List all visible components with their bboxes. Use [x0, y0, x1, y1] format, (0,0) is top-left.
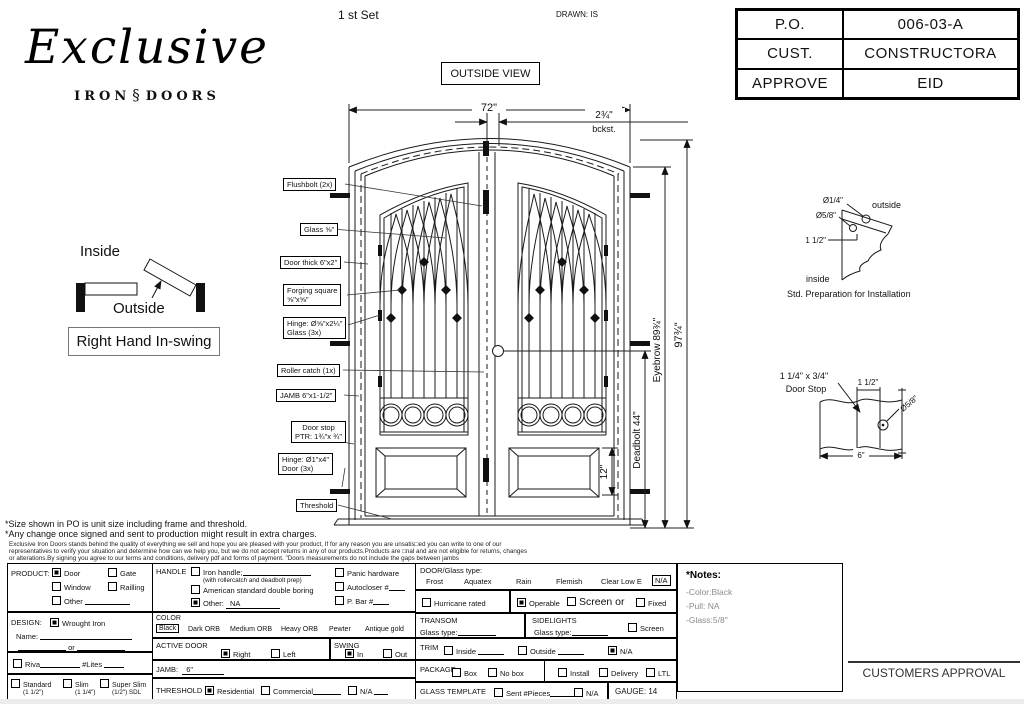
package-title: PACKAGE — [420, 665, 456, 674]
checkbox-sidelights-screen[interactable] — [628, 623, 637, 632]
checkbox-install[interactable] — [558, 668, 567, 677]
checkbox-residential[interactable] — [205, 686, 214, 695]
install-hole-fiveeighths-label: Ø5/8" — [816, 211, 836, 220]
glass-template-section: GLASS TEMPLATE Sent #Pieces N/A — [415, 682, 608, 700]
swing-outside-label: Outside — [113, 300, 165, 317]
swing-inside-label: Inside — [80, 243, 120, 260]
design-name-label: Name: — [16, 632, 38, 641]
checkbox-panic-hardware[interactable] — [335, 568, 344, 577]
bottom-panels — [376, 448, 599, 497]
jamb-value[interactable]: 6" — [182, 665, 224, 675]
callout-jamb: JAMB 6"x1-1/2" — [276, 389, 336, 402]
notes-section: *Notes: -Color:Black -Pull: NA -Glass:5/… — [677, 563, 843, 692]
active-door-section: ACTIVE DOOR Right Left — [152, 638, 330, 660]
checkbox-sent-pieces[interactable] — [494, 688, 503, 697]
checkbox-wrought-iron[interactable] — [50, 618, 59, 627]
logo-word-iron: IRON — [74, 89, 130, 104]
active-door-title: ACTIVE DOOR — [156, 641, 208, 650]
dim-backset-label: 2¾" — [595, 110, 613, 121]
checkbox-swing-out[interactable] — [383, 649, 392, 658]
checkbox-trim-na[interactable] — [608, 646, 617, 655]
checkbox-ltl[interactable] — [646, 668, 655, 677]
footnote-small-1: Exclusive Iron Doors stands behind the q… — [9, 541, 501, 548]
product-title: PRODUCT: — [11, 569, 49, 578]
iron-handle-blank[interactable] — [243, 567, 311, 576]
cust-value: CONSTRUCTORA — [843, 39, 1018, 68]
callout-hinge-door: Hinge: Ø1"x4" Door (3x) — [278, 453, 333, 475]
install-inside-label: inside — [806, 274, 830, 284]
checkbox-hurricane[interactable] — [422, 598, 431, 607]
callout-door-stop: Door stop PTR: 1¾"x ¾" — [291, 421, 346, 443]
callout-threshold: Threshold — [296, 499, 337, 512]
customers-approval-label: CUSTOMERS APPROVAL — [848, 666, 1020, 680]
logo-exclusive: Exclusive — [25, 20, 269, 75]
callout-glass: Glass ⅝" — [300, 223, 338, 236]
notes-title: *Notes: — [686, 570, 834, 581]
checkbox-active-left[interactable] — [271, 649, 280, 658]
color-option-dark-orb[interactable]: Dark ORB — [188, 626, 220, 633]
color-option-pewter[interactable]: Pewter — [329, 626, 351, 633]
note-pull: -Pull: NA — [686, 599, 834, 613]
outside-view-label: OUTSIDE VIEW — [441, 62, 540, 85]
lites-blank[interactable] — [104, 659, 124, 668]
approve-label: APPROVE — [737, 69, 843, 98]
dim-width-label: 72" — [481, 102, 497, 114]
handle-other-value[interactable]: NA — [226, 599, 280, 609]
checkbox-operable[interactable] — [517, 598, 526, 607]
approve-value: EID — [843, 69, 1018, 98]
operable-section: Operable Screen or Fixed — [510, 590, 677, 613]
checkbox-autocloser[interactable] — [335, 582, 344, 591]
checkbox-delivery[interactable] — [599, 668, 608, 677]
install-hole-quarter-label: Ø1/4" — [823, 196, 843, 205]
page-edge — [0, 699, 1024, 704]
thickness-section: Standard(1 1/2") Slim(1 1/4") Super Slim… — [7, 674, 153, 700]
p-bar-blank[interactable] — [373, 596, 389, 605]
dim-height-label: 97¾" — [673, 322, 685, 347]
checkbox-trim-outside[interactable] — [518, 646, 527, 655]
transom-glass-blank[interactable] — [458, 627, 496, 636]
cust-label: CUST. — [737, 39, 843, 68]
checkbox-screen[interactable] — [567, 597, 576, 606]
callout-door-thick: Door thick 6"x2" — [280, 256, 341, 269]
doorstop-name-label: Door Stop — [786, 384, 827, 394]
trim-title: TRIM — [420, 643, 438, 652]
lites-label: #Lites — [82, 660, 102, 669]
commercial-blank[interactable] — [313, 686, 341, 695]
footnote-small-3: or alterations.By signing you agree to o… — [9, 555, 459, 562]
jamb-section: JAMB: 6" — [152, 660, 416, 678]
callout-leaders — [332, 184, 484, 519]
checkbox-slim[interactable] — [63, 679, 72, 688]
doorstop-detail — [820, 383, 906, 459]
design-or-label: or — [68, 643, 75, 652]
dim-deadbolt-label: Deadbolt 44" — [632, 411, 643, 469]
glass-option-rain[interactable]: Rain — [516, 577, 531, 586]
po-table: P.O. 006-03-A CUST. CONSTRUCTORA APPROVE… — [735, 8, 1020, 100]
handle-title: HANDLE — [156, 567, 186, 576]
install-detail — [828, 204, 892, 280]
glass-option-clear-low-e[interactable]: Clear Low E — [601, 577, 642, 586]
sidelights-title: SIDELIGHTS — [532, 616, 577, 625]
color-title: COLOR — [156, 615, 181, 622]
callout-forging: Forging square ⅝"x⅝" — [283, 284, 341, 306]
checkbox-commercial[interactable] — [261, 686, 270, 695]
door-glass-title: DOOR/Glass type: — [420, 566, 482, 575]
threshold-title: THRESHOLD — [156, 686, 202, 695]
callout-roller-catch: Roller catch (1x) — [277, 364, 340, 377]
product-other-blank[interactable] — [85, 596, 130, 605]
note-color: -Color:Black — [686, 585, 834, 599]
glass-option-flemish[interactable]: Flemish — [556, 577, 582, 586]
door-frame — [334, 139, 646, 526]
doorstop-width-label: 6" — [857, 451, 864, 460]
signature-line[interactable] — [848, 661, 1020, 663]
po-value: 006-03-A — [843, 10, 1018, 39]
glass-option-na[interactable]: N/A — [652, 575, 671, 586]
checkbox-active-right[interactable] — [221, 649, 230, 658]
door-hardware — [330, 141, 650, 494]
color-option-heavy-orb[interactable]: Heavy ORB — [281, 626, 318, 633]
dim-eyebrow-label: Eyebrow 89¾" — [652, 317, 663, 382]
color-option-medium-orb[interactable]: Medium ORB — [230, 626, 272, 633]
install-outside-label: outside — [872, 200, 901, 210]
checkbox-product-other[interactable] — [52, 596, 61, 605]
sidelights-glass-blank[interactable] — [572, 627, 608, 636]
checkbox-template-na[interactable] — [574, 688, 583, 697]
checkbox-standard[interactable] — [11, 679, 20, 688]
note-glass: -Glass:5/8" — [686, 613, 834, 627]
checkbox-box[interactable] — [452, 668, 461, 677]
doorstop-dim-label: 1 1/2" — [858, 378, 879, 387]
dimension-lines — [349, 101, 694, 528]
callout-hinge-glass: Hinge: Ø⅝"x2¼" Glass (3x) — [283, 317, 346, 339]
callout-flushbolt: Flushbolt (2x) — [283, 178, 336, 191]
checkbox-handle-other[interactable] — [191, 598, 200, 607]
glass-option-frost[interactable]: Frost — [426, 577, 443, 586]
doorstop-hole-label: Ø5/8" — [899, 394, 920, 414]
jamb-title: JAMB: — [156, 665, 178, 674]
footnote-1: *Size shown in PO is unit size including… — [5, 519, 247, 529]
trim-inside-blank[interactable] — [478, 646, 504, 655]
checkbox-door[interactable] — [52, 568, 61, 577]
logo-word-doors: DOORS — [146, 89, 220, 104]
footnote-small-2: representatives to verify your situation… — [9, 548, 527, 555]
checkbox-iron-handle[interactable] — [191, 567, 200, 576]
checkbox-american-boring[interactable] — [191, 585, 200, 594]
trim-section: TRIM Inside Outside N/A — [415, 638, 677, 660]
knob-prep — [493, 346, 504, 357]
checkbox-super-slim[interactable] — [100, 679, 109, 688]
riva-blank[interactable] — [40, 659, 80, 668]
set-label: 1 st Set — [338, 8, 379, 22]
checkbox-no-box[interactable] — [488, 668, 497, 677]
gauge-section: GAUGE: 14 — [608, 682, 677, 700]
package-section: PACKAGE Box No box Install Delivery LTL — [415, 660, 677, 682]
checkbox-gate[interactable] — [108, 568, 117, 577]
gauge-value: GAUGE: 14 — [615, 687, 657, 696]
checkbox-fixed[interactable] — [636, 598, 645, 607]
door-spec-sheet: 72" 2¾" bckst. 12" Deadbolt 44" Eyebrow … — [0, 0, 1024, 704]
install-offset-label: 1 1/2" — [805, 236, 826, 245]
product-section: PRODUCT: Door Gate Window Railling Other — [7, 563, 153, 612]
checkbox-window[interactable] — [52, 582, 61, 591]
checkbox-railing[interactable] — [108, 582, 117, 591]
dim-backset-sub: bckst. — [592, 124, 616, 134]
color-option-black[interactable]: Black — [156, 624, 179, 633]
glass-option-aquatex[interactable]: Aquatex — [464, 577, 492, 586]
doorstop-size-label: 1 1/4" x 3/4" — [780, 371, 828, 381]
transom-section: TRANSOM Glass type: — [415, 613, 525, 638]
autocloser-blank[interactable] — [389, 582, 405, 591]
transom-title: TRANSOM — [420, 616, 458, 625]
color-section: COLOR Black Dark ORB Medium ORB Heavy OR… — [152, 612, 416, 638]
dim-panel-label: 12" — [599, 464, 610, 479]
scroll-icon: § — [130, 86, 146, 104]
checkbox-swing-in[interactable] — [345, 649, 354, 658]
iron-handle-note: (with rollercatch and deadbolt prep) — [203, 577, 302, 584]
glass-panels — [380, 183, 606, 435]
design-section: DESIGN: Wrought Iron Name: or — [7, 612, 153, 652]
checkbox-trim-inside[interactable] — [444, 646, 453, 655]
threshold-na-blank[interactable] — [374, 686, 388, 695]
sidelights-section: SIDELIGHTS Glass type: Screen — [525, 613, 677, 638]
design-name-blank[interactable] — [40, 631, 132, 640]
swing-type-label: Right Hand In-swing — [68, 327, 220, 356]
hurricane-section: Hurricane rated — [415, 590, 510, 613]
trim-outside-blank[interactable] — [558, 646, 584, 655]
po-label: P.O. — [737, 10, 843, 39]
drawn-by-label: DRAWN: IS — [556, 10, 598, 19]
glass-template-title: GLASS TEMPLATE — [420, 687, 486, 696]
footnote-2: *Any change once signed and sent to prod… — [5, 529, 317, 539]
threshold-section: THRESHOLD Residential Commercial N/A — [152, 678, 416, 700]
checkbox-p-bar[interactable] — [335, 596, 344, 605]
logo-tagline: IRON§DOORS — [52, 86, 242, 104]
riva-section: Riva #Lites — [7, 652, 153, 674]
handle-section: HANDLE Iron handle; (with rollercatch an… — [152, 563, 416, 612]
forging-rosettes — [386, 257, 600, 323]
swing-section: SWING In Out — [330, 638, 416, 660]
design-title: DESIGN: — [11, 618, 42, 627]
door-glass-section: DOOR/Glass type: Frost Aquatex Rain Flem… — [415, 563, 677, 590]
color-option-antique-gold[interactable]: Antique gold — [365, 626, 404, 633]
checkbox-threshold-na[interactable] — [348, 686, 357, 695]
checkbox-riva[interactable] — [13, 659, 22, 668]
install-caption: Std. Preparation for Installation — [787, 289, 911, 299]
